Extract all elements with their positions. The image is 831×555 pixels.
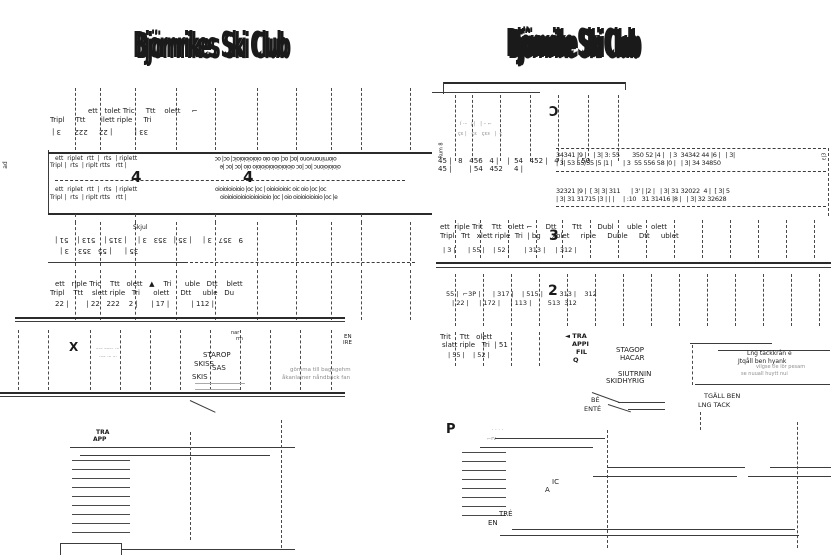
room-divider: [500, 95, 501, 161]
room-numbers: | 22 | | 172 | | 113 | 513 312: [452, 300, 577, 307]
room-type-labels: Tripl | rts | riplt rtts rtt |: [50, 163, 127, 169]
note-text: LNG TACK: [698, 402, 730, 409]
start-area-label: STAROP: [203, 352, 231, 359]
corridor-wall: [48, 152, 432, 154]
room-divider: [702, 220, 703, 258]
room-divider: [472, 95, 473, 161]
room-numbers: | 3| 53 55/55 |5 |1 | | 3 55 556 58 |0 |…: [556, 160, 721, 167]
room-divider: [257, 88, 258, 150]
start-area-label: SAS: [212, 365, 226, 372]
ski-rental-label: SKIDHYRIG: [606, 378, 644, 385]
room-divider: [730, 220, 731, 258]
room-divider: [90, 330, 91, 390]
room-divider: [707, 274, 708, 326]
stairs-label: FIL: [576, 349, 587, 356]
staircase: [72, 460, 130, 534]
parking-label: P: [446, 423, 456, 436]
small-label: rrn: [236, 337, 243, 342]
entrance-label: ENTÉ: [584, 406, 601, 413]
room-number-strip: oioioioionc |oc |oc oioioioioioioioioio …: [220, 163, 341, 169]
ramp-line: [618, 402, 665, 403]
wall: [0, 392, 345, 394]
faint-scribble: –·– –––· ·–: [96, 347, 119, 352]
side-label: ɛ|3: [822, 153, 827, 161]
building-wall: [500, 535, 799, 536]
room-number-strip: oioioioioioioioioioioio |oc | oio oioioi…: [220, 195, 337, 201]
building-wall: [443, 82, 625, 84]
ramp-line: [628, 409, 665, 410]
room-divider: [296, 88, 297, 150]
room-numbers: | 55 | | 52 |: [448, 352, 490, 359]
room-divider: [331, 270, 332, 320]
wall: [48, 150, 49, 215]
room-divider: [651, 274, 652, 326]
entrance-label: TRÉ: [499, 511, 513, 518]
walkway-line: [593, 476, 737, 477]
corridor-centerline: [55, 180, 405, 181]
entrance-label: EN: [488, 520, 498, 527]
room-number-strip: oioioioioioio |oc |oc | oioioioioic oic …: [215, 187, 326, 193]
room-divider: [296, 270, 297, 320]
note-text: TGÄLL BEN: [704, 393, 740, 400]
room-divider: [763, 274, 764, 326]
left-side-label: ad: [3, 161, 9, 169]
room-type-labels: slatt riple Tri | 51: [442, 342, 508, 349]
room-divider: [120, 330, 121, 390]
room-divider: [48, 330, 49, 390]
room-divider: [331, 222, 332, 266]
ramp-line: [190, 400, 216, 413]
note-box-edge: [692, 345, 693, 385]
room-type-labels: Tripl Ttt ilett riple Tri: [50, 117, 152, 124]
room-divider: [786, 220, 787, 258]
wall-dashed: [556, 148, 826, 149]
entry-box: [60, 543, 122, 555]
room-divider: [539, 332, 540, 366]
note-text: åkanlainer nåndbäck fan: [282, 376, 350, 382]
room-divider: [410, 270, 411, 320]
building-wall: [480, 447, 593, 448]
room-type-labels: Tripl Trt xlett riple Tri | bg xblet rip…: [440, 233, 679, 240]
small-label: IRE: [343, 341, 352, 347]
building-wall: [80, 455, 270, 456]
shed-label: Skjul: [133, 225, 147, 231]
room-divider: [455, 95, 456, 161]
room-numbers: 35 | | 55 353 3 |: [60, 247, 138, 254]
walkway-line: [607, 467, 745, 468]
corridor-wall: [436, 267, 831, 268]
faint-scribble: · · · ·: [492, 428, 503, 433]
room-numbers: 55 | ⌐3P | | 317 | | 515 | 313 | 312: [446, 291, 597, 298]
building-divider: [281, 420, 282, 548]
building-wall: [70, 447, 295, 448]
room-divider: [18, 330, 19, 390]
walkway-line: [748, 476, 831, 477]
room-divider: [361, 270, 362, 320]
note-box-edge: [695, 384, 830, 385]
room-divider: [215, 88, 216, 150]
right-panel-title-overprint: Björnrike Ski Club: [508, 26, 639, 64]
corridor-wall: [436, 262, 831, 264]
room-divider: [270, 330, 271, 390]
room-divider: [150, 330, 151, 390]
room-divider: [180, 330, 181, 390]
note-box-edge: [690, 343, 772, 344]
start-area-label: SKIS: [192, 374, 208, 381]
start-area-label: SKISS: [194, 361, 214, 368]
room-divider: [257, 270, 258, 320]
faint-scribble: çɛ | çɛ çɛɜ | ç: [458, 132, 502, 137]
x-mark: X: [69, 341, 78, 353]
building-edge: [828, 148, 829, 216]
building-divider: [607, 430, 608, 548]
room-numbers: | 3| 31 31715 |3 | | | | :10 31 31416 |8…: [556, 196, 726, 203]
room-label: IC: [552, 479, 559, 486]
wall-dashed: [190, 262, 415, 263]
room-divider: [296, 222, 297, 266]
faint-scribble: ·–– ·– –·: [99, 355, 117, 360]
section-mark: Ɔ: [549, 106, 559, 119]
room-divider: [257, 222, 258, 266]
floor-number: 3: [549, 229, 559, 243]
room-type-labels: Tripl | rts | riplt rtts rtt |: [50, 195, 127, 201]
room-divider: [791, 274, 792, 326]
note-text: gömma till bagagehm: [290, 368, 351, 374]
room-label: A: [545, 487, 550, 494]
entrance-label: BÉ: [591, 397, 600, 404]
room-type-labels: ett tolet Tric Ttt olett ⌐: [88, 108, 197, 115]
ski-rental-label: HACAR: [620, 355, 644, 362]
walkway-line: [770, 467, 831, 468]
building-wall: [495, 438, 605, 439]
room-divider: [410, 88, 411, 150]
faint-scribble: í ·– ¡·| | – ⌐: [460, 122, 492, 127]
stairs-label: APP: [93, 437, 106, 443]
room-type-labels: ett riple Tric Ttt olett ▲ Tri uble Dtt …: [55, 281, 243, 288]
corridor-wall: [48, 213, 432, 215]
building-wall: [432, 92, 540, 93]
room-divider: [410, 222, 411, 266]
floor-number: 4: [243, 170, 253, 185]
room-divider: [75, 222, 76, 266]
room-divider: [735, 274, 736, 326]
wall-tick: [700, 412, 701, 430]
building-divider: [797, 422, 798, 548]
room-type-labels: ett riplet rtt | rts | riplett: [55, 187, 137, 193]
wall-dashed: [556, 206, 826, 207]
ski-rental-label: STAGOP: [616, 347, 644, 354]
building-wall: [512, 529, 795, 530]
wall-dashed: [556, 171, 826, 172]
underline: [195, 389, 240, 390]
building-wall: [625, 82, 626, 90]
room-numbers: 9 357 3 | | 35 | 353 3 | | 315 | 513 | 5…: [55, 236, 243, 243]
room-numbers: 32321 |9 | [ 3| 3| 311 | 3' | |2 | | 3| …: [556, 188, 730, 195]
ski-club-map: Björnrikes Ski Club Björnrikes Ski Club …: [0, 0, 831, 555]
note-text: se nuuall huytt nui: [741, 372, 788, 377]
room-numbers: | 3 | | 55 | | 52 | | 313 | | 312 |: [443, 247, 577, 254]
note-text: Lng tackkrån e: [747, 351, 792, 357]
room-divider: [595, 274, 596, 326]
underline: [195, 383, 245, 384]
stairs-label: Q: [573, 357, 579, 364]
room-divider: [819, 274, 820, 326]
building-wall: [120, 549, 295, 550]
room-divider: [530, 95, 531, 161]
room-number-strip: oiominonvono |oc| oc| oio oio oioioioioi…: [215, 155, 337, 161]
room-divider: [100, 222, 101, 266]
room-divider: [331, 88, 332, 150]
room-divider: [814, 220, 815, 258]
wall: [0, 396, 345, 397]
room-divider: [679, 274, 680, 326]
room-divider: [511, 332, 512, 366]
room-numbers: 33 | | 22 222 3 |: [52, 128, 148, 135]
room-divider: [361, 222, 362, 266]
corridor-wall: [15, 317, 345, 319]
room-divider: [215, 222, 216, 266]
wall: [48, 262, 188, 263]
stairs-label: ◄ TRA: [565, 333, 587, 340]
building-divider: [190, 432, 191, 540]
room-divider: [758, 220, 759, 258]
corridor-wall: [15, 321, 345, 322]
floor-number: 4: [131, 170, 141, 185]
room-numbers: 45 | | 54 452 4 |: [438, 166, 523, 173]
room-numbers: 22 | | 22 222 2 | | 17 | | 112 |: [55, 301, 214, 308]
stairs-label: APPI: [572, 341, 589, 348]
room-divider: [361, 88, 362, 150]
room-divider: [176, 222, 177, 266]
room-divider: [623, 274, 624, 326]
room-type-labels: Trit Ttt olett: [440, 334, 492, 341]
left-panel-title-overprint: Björnrikes Ski Club: [136, 29, 290, 65]
note-text: vilgse tle lör pesam: [756, 365, 805, 370]
room-numbers: 34341 |9 | | 3| 3: 55 350 52 |4 | | 3 34…: [556, 152, 735, 159]
room-type-labels: Tripl Ttt slett riple Tri olett Dtt uble…: [50, 290, 234, 297]
room-divider: [176, 88, 177, 150]
